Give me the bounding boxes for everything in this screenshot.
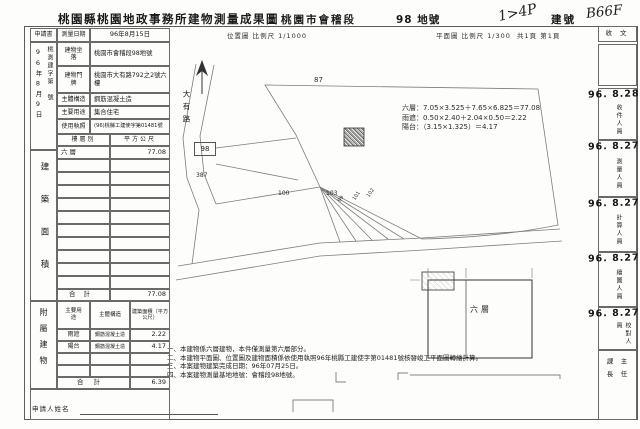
page-title: 桃園縣桃園地政事務所建物測量成果圖 [58,11,279,27]
field-label: 建物門牌 [57,66,90,93]
date-stamp: 96. 8.27 [588,140,640,152]
lot-label: 103 [326,190,337,197]
area-calculations: 六層：7.05×3.525＋7.65×6.825＝77.08 雨遮：0.50×2… [402,104,540,133]
applicant-doc-label: 申請書 [30,28,57,42]
officer-label: 測量人員 [614,158,623,194]
empty-row [90,353,130,365]
empty-row [57,276,110,289]
building-no-label: 建號 [551,12,576,27]
calc-floor: 六層：7.05×3.525＋7.65×6.825＝77.08 [402,104,540,114]
annex-row-use: 陽台 [57,341,90,353]
empty-row [130,353,170,365]
annex-row-use: 雨遮 [57,329,90,341]
plan-floor-label: 六層 [470,304,492,315]
parcel-boundaries [176,64,562,280]
floor-total-label: 合計 [57,289,110,301]
road-name-label: 大有路 [181,90,192,140]
lot-label: 100 [278,190,289,197]
floor-col-header: 樓層別 [57,134,110,146]
empty-row [110,172,170,185]
empty-row [110,211,170,224]
field-value: 桃園市會稽段98地號 [90,42,170,66]
date-stamp: 96. 8.28 [588,88,640,100]
empty-row [57,211,110,224]
floor-row-area: 77.08 [110,146,170,159]
empty-row [57,353,90,365]
building-area-section-label: 建築面積 [38,162,50,292]
empty-row [57,159,110,172]
empty-row [57,185,110,198]
date-stamp: 96. 8.27 [588,252,640,264]
receipt-doc-no-vertical: 桃測建字第 號 [45,46,54,146]
receive-doc-cell: 收 文 [598,26,637,42]
dimension-marks [293,372,560,412]
field-value: 鋼筋混凝土造 [90,93,170,106]
empty-row [57,224,110,237]
floor-row-name: 六層 [57,146,110,159]
empty-row [130,365,170,377]
area-col-header: 平方公尺 [110,134,170,146]
annex-col-use: 主要用途 [57,301,90,329]
handwritten-mark: 1>4P [497,1,538,25]
empty-row [57,250,110,263]
annex-total-value: 6.39 [130,377,170,389]
subject-building-hatched [344,128,364,146]
annex-col-area: 建築面積（平方公尺） [130,301,170,329]
receipt-date-vertical: 96年8月9日 [33,48,43,144]
field-label: 使用執照 [57,119,90,134]
field-value: 集合住宅 [90,106,170,119]
building-survey-sheet: 桃園縣桃園地政事務所建物測量成果圖 桃園市會稽段 98 地號 1>4P 建號 B… [0,0,640,429]
officer-label: 繪圖人員 [614,269,623,305]
applicant-signature-line [80,414,218,415]
field-label: 建物坐落 [57,42,90,66]
approval-label-section-head: 課長 [604,358,614,414]
field-label: 主體構造 [57,93,90,106]
page-count-label: 共1頁 第1頁 [517,30,560,40]
annex-row-structure: 鋼筋混凝土造 [90,341,130,353]
calc-rain-cover: 雨遮：0.50×2.40＋2.04×0.50＝2.22 [402,114,540,124]
north-arrow-icon [196,60,208,94]
annex-section-label: 附屬建物 [38,308,49,384]
calc-balcony: 陽台：（3.15×1.325）＝4.17 [402,123,540,133]
receive-stamp-box [598,44,637,86]
plan-scale-label: 平面圖 比例尺 1/300 [436,30,511,40]
applicant-name-label: 申請人姓名 [32,403,70,413]
annex-col-structure: 主體構造 [90,301,130,329]
survey-date-label: 測量日期 [57,28,90,42]
approval-label-chief: 主任 [618,358,628,414]
date-stamp: 96. 8.27 [588,197,640,209]
note-4: 四、本案建物測量基地地號：會稽段98地號。 [167,369,299,379]
empty-row [110,276,170,289]
empty-row [110,250,170,263]
officer-label: 校對人員 [614,322,632,348]
building-no-handwritten: B66F [585,2,623,22]
empty-row [110,263,170,276]
officer-label: 收件人員 [614,104,623,138]
field-value: 桃園市大有路792之2號六樓 [90,66,170,93]
lot-label: 87 [314,76,323,84]
survey-date-value: 96年8月15日 [90,28,170,42]
empty-row [57,365,90,377]
floor-total-value: 77.08 [110,289,170,301]
position-map-scale-label: 位置圖 比例尺 1/1000 [227,30,307,40]
empty-row [110,185,170,198]
field-value: (96)桃縣工建使字第01481號 [90,119,170,134]
empty-row [110,224,170,237]
lot-label: 387 [196,172,207,179]
annex-row-area: 2.22 [130,329,170,341]
annex-total-label: 合計 [57,377,130,389]
empty-row [57,263,110,276]
field-label: 主要用途 [57,106,90,119]
empty-row [57,237,110,250]
empty-row [110,159,170,172]
officer-label: 計算人員 [614,214,623,250]
annex-row-area: 4.17 [130,341,170,353]
empty-row [110,237,170,250]
empty-row [110,198,170,211]
empty-row [57,172,110,185]
district-label: 桃園市會稽段 [281,12,356,27]
annex-row-structure: 鋼筋混凝土造 [90,329,130,341]
lot-number: 98 地號 [396,12,440,27]
subject-lot-label: 98 [194,142,216,156]
empty-row [57,198,110,211]
empty-row [90,365,130,377]
date-stamp: 96. 8.27 [588,307,640,319]
